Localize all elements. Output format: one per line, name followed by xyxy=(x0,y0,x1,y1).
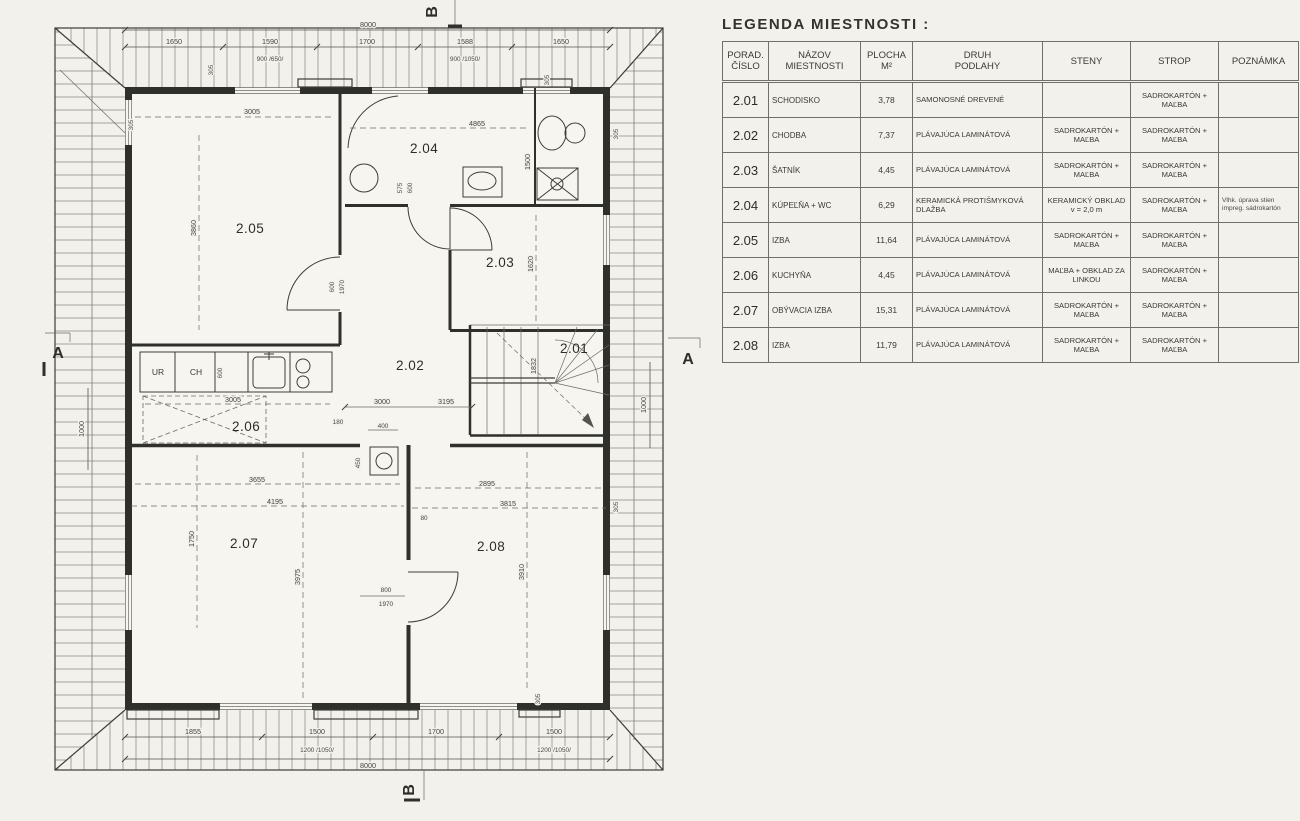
room-walls xyxy=(1043,82,1131,118)
room-ceiling: SADROKARTÓN + MAĽBA xyxy=(1131,153,1219,188)
room-floor: SAMONOSNÉ DREVENÉ xyxy=(913,82,1043,118)
legend-row-2-07: 2.07 OBÝVACIA IZBA 15,31 PLÁVAJÚCA LAMIN… xyxy=(723,293,1299,328)
room-area: 3,78 xyxy=(861,82,913,118)
dim-hall-c: 180 xyxy=(333,419,344,426)
roof-band-left xyxy=(55,28,125,770)
room-floor: PLÁVAJÚCA LAMINÁTOVÁ xyxy=(913,118,1043,153)
section-marker-a-right: A xyxy=(682,351,694,368)
room-note xyxy=(1219,82,1299,118)
room-label-2-08: 2.08 xyxy=(477,539,505,554)
freezer-label: CH xyxy=(190,367,202,377)
room-note xyxy=(1219,293,1299,328)
col-header-name: NÁZOV MIESTNOSTI xyxy=(769,42,861,82)
room-ceiling: SADROKARTÓN + MAĽBA xyxy=(1131,82,1219,118)
dim-bath-door-a: 575 xyxy=(397,182,404,193)
dim-door208-h: 1970 xyxy=(379,601,394,608)
room-floor: KERAMICKÁ PROTIŠMYKOVÁ DLAŽBA xyxy=(913,188,1043,223)
room-name: SCHODISKO xyxy=(769,82,861,118)
dim-205-h: 3860 xyxy=(189,220,198,236)
room-walls: SADROKARTÓN + MAĽBA xyxy=(1043,328,1131,363)
room-name: IZBA xyxy=(769,328,861,363)
room-floor: PLÁVAJÚCA LAMINÁTOVÁ xyxy=(913,223,1043,258)
dim-top-5: 1650 xyxy=(553,37,569,46)
dim-top-overall: 8000 xyxy=(360,20,376,29)
room-number: 2.08 xyxy=(723,328,769,363)
dim-bottom-2: 1500 xyxy=(309,727,325,736)
dim-chimney-h: 450 xyxy=(355,457,362,468)
dim-204-w: 4865 xyxy=(469,119,485,128)
room-name: IZBA xyxy=(769,223,861,258)
dim-hall-a: 3000 xyxy=(374,397,390,406)
section-marker-a-left: A xyxy=(52,345,64,362)
dim-bath-door-b: 600 xyxy=(407,182,414,193)
dim-hall-b: 3195 xyxy=(438,397,454,406)
room-ceiling: SADROKARTÓN + MAĽBA xyxy=(1131,328,1219,363)
legend-row-2-02: 2.02 CHODBA 7,37 PLÁVAJÚCA LAMINÁTOVÁ SA… xyxy=(723,118,1299,153)
room-label-2-04: 2.04 xyxy=(410,141,438,156)
dim-208-c: 3910 xyxy=(517,564,526,580)
scanned-floor-plan-page: { "legend": { "title": "LEGENDA MIESTNOS… xyxy=(0,0,1300,821)
room-floor: PLÁVAJÚCA LAMINÁTOVÁ xyxy=(913,328,1043,363)
room-ceiling: SADROKARTÓN + MAĽBA xyxy=(1131,223,1219,258)
dim-right-side: 1000 xyxy=(639,397,648,413)
room-area: 15,31 xyxy=(861,293,913,328)
dim-bottom-4: 1500 xyxy=(546,727,562,736)
floor-plan-drawing: UR CH 8000 xyxy=(0,0,712,821)
room-area: 11,64 xyxy=(861,223,913,258)
room-note: Vlhk. úprava stien impreg. sádrokartón xyxy=(1219,188,1299,223)
col-header-ceiling: STROP xyxy=(1131,42,1219,82)
room-floor: PLÁVAJÚCA LAMINÁTOVÁ xyxy=(913,293,1043,328)
legend-row-2-06: 2.06 KUCHYŇA 4,45 PLÁVAJÚCA LAMINÁTOVÁ M… xyxy=(723,258,1299,293)
room-note xyxy=(1219,153,1299,188)
room-walls: KERAMICKÝ OBKLAD v = 2,0 m xyxy=(1043,188,1131,223)
legend-row-2-03: 2.03 ŠATNÍK 4,45 PLÁVAJÚCA LAMINÁTOVÁ SA… xyxy=(723,153,1299,188)
dim-208-a: 2895 xyxy=(479,479,495,488)
room-ceiling: SADROKARTÓN + MAĽBA xyxy=(1131,118,1219,153)
room-name: KUCHYŇA xyxy=(769,258,861,293)
dim-204-h: 1500 xyxy=(523,154,532,170)
dim-207-d: 3975 xyxy=(293,569,302,585)
dim-207-b: 4195 xyxy=(267,497,283,506)
legend-panel: LEGENDA MIESTNOSTI : PORAD. ČÍSLO NÁZOV … xyxy=(722,16,1300,363)
dim-wall-80: 80 xyxy=(420,515,428,522)
room-label-2-01: 2.01 xyxy=(560,341,588,356)
room-ceiling: SADROKARTÓN + MAĽBA xyxy=(1131,188,1219,223)
room-number: 2.01 xyxy=(723,82,769,118)
dim-top-window-2: 900 /1050/ xyxy=(450,56,480,63)
room-note xyxy=(1219,223,1299,258)
room-walls: SADROKARTÓN + MAĽBA xyxy=(1043,293,1131,328)
room-name: CHODBA xyxy=(769,118,861,153)
room-label-2-07: 2.07 xyxy=(230,536,258,551)
room-number: 2.04 xyxy=(723,188,769,223)
dim-top-1: 1650 xyxy=(166,37,182,46)
room-area: 11,79 xyxy=(861,328,913,363)
dim-207-a: 3655 xyxy=(249,475,265,484)
room-label-2-03: 2.03 xyxy=(486,255,514,270)
dim-bottom-3: 1700 xyxy=(428,727,444,736)
room-name: KÚPEĽŇA + WC xyxy=(769,188,861,223)
room-area: 4,45 xyxy=(861,258,913,293)
dim-208-b: 3815 xyxy=(500,499,516,508)
dim-top-window-1: 900 /650/ xyxy=(257,56,284,63)
room-walls: SADROKARTÓN + MAĽBA xyxy=(1043,153,1131,188)
dim-305-right: 305 xyxy=(613,128,620,139)
col-header-note: POZNÁMKA xyxy=(1219,42,1299,82)
dim-top-2: 1590 xyxy=(262,37,278,46)
dim-stair-h: 1832 xyxy=(529,358,538,374)
col-header-walls: STENY xyxy=(1043,42,1131,82)
room-number: 2.05 xyxy=(723,223,769,258)
dim-203-h: 1620 xyxy=(526,256,535,272)
dim-305-bottom: 305 xyxy=(535,693,542,704)
dim-door205-w: 600 xyxy=(329,281,336,292)
dim-bottom-overall: 8000 xyxy=(360,761,376,770)
dim-door205-h: 1970 xyxy=(339,279,346,294)
col-header-area: PLOCHA M² xyxy=(861,42,913,82)
dim-bottom-1: 1855 xyxy=(185,727,201,736)
room-number: 2.06 xyxy=(723,258,769,293)
legend-row-2-05: 2.05 IZBA 11,64 PLÁVAJÚCA LAMINÁTOVÁ SAD… xyxy=(723,223,1299,258)
room-note xyxy=(1219,258,1299,293)
legend-header-row: PORAD. ČÍSLO NÁZOV MIESTNOSTI PLOCHA M² … xyxy=(723,42,1299,82)
dim-305-top-right: 305 xyxy=(544,74,551,85)
fridge-label: UR xyxy=(152,367,164,377)
dim-kitchen-d: 600 xyxy=(217,367,224,378)
room-area: 4,45 xyxy=(861,153,913,188)
dim-top-4: 1588 xyxy=(457,37,473,46)
room-ceiling: SADROKARTÓN + MAĽBA xyxy=(1131,293,1219,328)
legend-title: LEGENDA MIESTNOSTI : xyxy=(722,16,1300,33)
room-walls: MAĽBA + OBKLAD ZA LINKOU xyxy=(1043,258,1131,293)
room-ceiling: SADROKARTÓN + MAĽBA xyxy=(1131,258,1219,293)
room-number: 2.02 xyxy=(723,118,769,153)
dim-305-top: 305 xyxy=(208,64,215,75)
room-area: 6,29 xyxy=(861,188,913,223)
legend-row-2-08: 2.08 IZBA 11,79 PLÁVAJÚCA LAMINÁTOVÁ SAD… xyxy=(723,328,1299,363)
room-walls: SADROKARTÓN + MAĽBA xyxy=(1043,223,1131,258)
dim-305-left: 305 xyxy=(128,119,135,130)
dim-207-c: 1750 xyxy=(187,531,196,547)
room-name: OBÝVACIA IZBA xyxy=(769,293,861,328)
legend-table: PORAD. ČÍSLO NÁZOV MIESTNOSTI PLOCHA M² … xyxy=(722,41,1299,363)
room-label-2-02: 2.02 xyxy=(396,358,424,373)
room-label-2-05: 2.05 xyxy=(236,221,264,236)
col-header-num: PORAD. ČÍSLO xyxy=(723,42,769,82)
legend-row-2-01: 2.01 SCHODISKO 3,78 SAMONOSNÉ DREVENÉ SA… xyxy=(723,82,1299,118)
room-number: 2.07 xyxy=(723,293,769,328)
room-area: 7,37 xyxy=(861,118,913,153)
dim-door208-w: 800 xyxy=(381,587,392,594)
dim-left-side: 1000 xyxy=(77,421,86,437)
room-note xyxy=(1219,328,1299,363)
room-note xyxy=(1219,118,1299,153)
legend-row-2-04: 2.04 KÚPEĽŇA + WC 6,29 KERAMICKÁ PROTIŠM… xyxy=(723,188,1299,223)
dim-kitchen-w: 3005 xyxy=(225,395,241,404)
section-marker-b-top: B xyxy=(424,6,441,18)
room-label-2-06: 2.06 xyxy=(232,419,260,434)
room-floor: PLÁVAJÚCA LAMINÁTOVÁ xyxy=(913,258,1043,293)
dim-chimney-w: 400 xyxy=(378,423,389,430)
dim-305-right-low: 305 xyxy=(613,501,620,512)
col-header-floor: DRUH PODLAHY xyxy=(913,42,1043,82)
room-number: 2.03 xyxy=(723,153,769,188)
room-floor: PLÁVAJÚCA LAMINÁTOVÁ xyxy=(913,153,1043,188)
dim-bottom-window-1: 1200 /1050/ xyxy=(300,747,334,754)
section-marker-b-bottom: B xyxy=(401,784,418,796)
room-name: ŠATNÍK xyxy=(769,153,861,188)
dim-bottom-window-2: 1200 /1050/ xyxy=(537,747,571,754)
room-walls: SADROKARTÓN + MAĽBA xyxy=(1043,118,1131,153)
dim-205-w: 3005 xyxy=(244,107,260,116)
dim-top-3: 1700 xyxy=(359,37,375,46)
